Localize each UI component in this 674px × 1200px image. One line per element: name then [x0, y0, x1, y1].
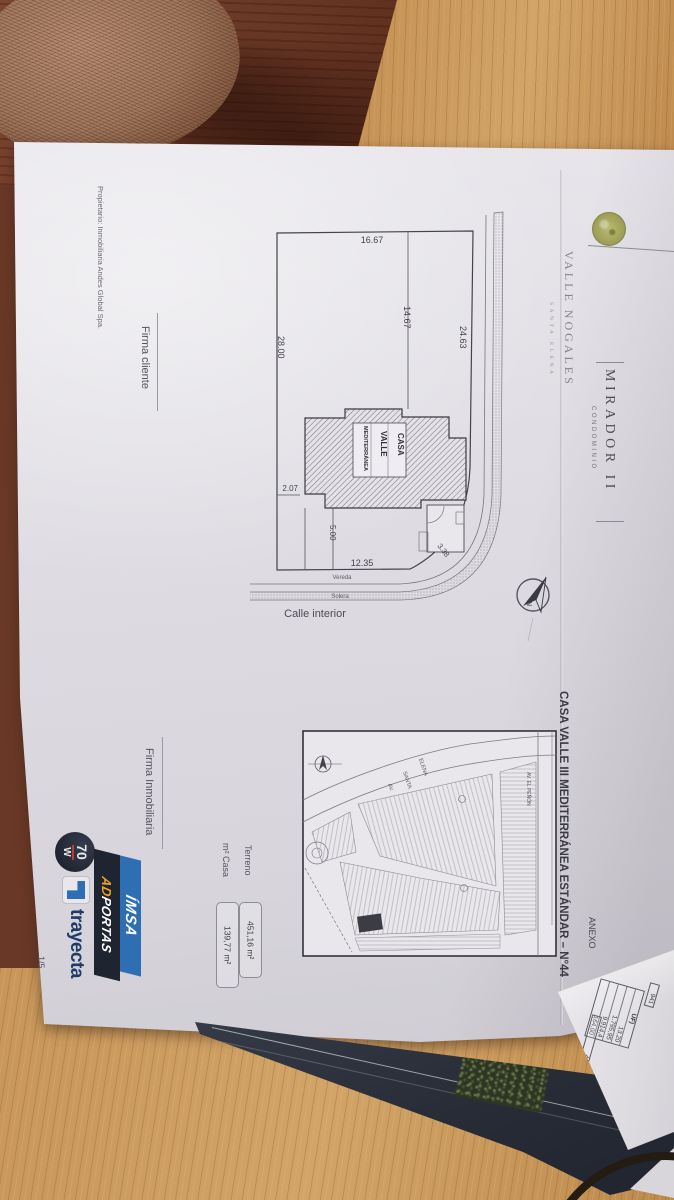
dim-inner: 14.67 — [402, 306, 412, 329]
north-letter: N — [525, 601, 532, 606]
anniversary-badge-line — [72, 845, 74, 860]
north-compass-icon: N — [517, 577, 549, 641]
house-label-line2: VALLE — [379, 431, 388, 457]
dim-top: 16.67 — [361, 235, 384, 245]
dim-drive: 5.00 — [328, 525, 337, 541]
dim-bottom: 12.35 — [351, 558, 374, 568]
dim-left: 28.00 — [276, 336, 286, 359]
imsa-adportas-logo: ÍMSA ADPORTAS — [93, 852, 141, 978]
anniversary-badge-bottom: W — [61, 847, 71, 856]
right-avenue-label: AV. EL PEÑÓN — [525, 772, 532, 806]
background-table-code: 941 — [644, 982, 660, 1008]
street-label: Calle interior — [284, 608, 346, 620]
subject-lot-marker — [357, 913, 383, 932]
house-label-line3: MEDITERRÁNEA — [362, 426, 369, 471]
project-subname: CONDOMINIO — [590, 406, 596, 471]
anniversary-badge-top: 70 — [75, 844, 89, 860]
agency-signature-line — [162, 737, 163, 849]
adportas-logo-text: ADPORTAS — [94, 849, 120, 981]
trayecta-logo-icon — [63, 877, 89, 903]
project-rule-top — [596, 362, 624, 363]
project-name: MIRADOR II — [601, 369, 617, 493]
trayecta-logo-text: trayecta — [65, 909, 87, 978]
valle-nogales-logo-icon — [592, 212, 626, 246]
project-rule-bottom — [596, 521, 624, 522]
land-area-label: Terreno — [243, 845, 253, 876]
house-label-line1: CASA — [396, 433, 405, 456]
sidewalk-label: Vereda — [332, 575, 352, 581]
client-signature-label: Firma cliente — [139, 326, 151, 389]
house-area-value: 139,77 m² — [223, 926, 233, 964]
bg-table-code-value: 941 — [645, 983, 659, 1006]
site-plan-drawing: CASA VALLE MEDITERRÁNEA 16.67 14.67 24.6… — [250, 200, 570, 650]
location-map: AV. SANTA ELENA AV. EL PEÑÓN — [296, 722, 564, 962]
land-area-box: 451,16 m² — [239, 902, 262, 978]
house-area-label: m² Casa — [221, 843, 231, 877]
agency-signature-label: Firma Inmobiliaria — [143, 748, 155, 835]
adportas-portas: PORTAS — [100, 895, 115, 955]
client-signature-line — [157, 313, 158, 411]
curb-label: Solera — [331, 594, 349, 600]
owner-label: Propietario: Inmobiliaria Andes Global S… — [96, 186, 105, 329]
trayecta-logo: trayecta — [59, 877, 93, 995]
curb-band — [250, 212, 503, 600]
dim-right: 24.63 — [458, 326, 468, 349]
house-area-box: 139,77 m² — [216, 902, 239, 988]
dim-step: 2.07 — [282, 484, 298, 493]
anniversary-badge: 70 W — [55, 832, 95, 872]
annex-label: ANEXO — [587, 917, 597, 949]
page-number: 1/5 — [36, 956, 46, 969]
land-area-value: 451,16 m² — [246, 921, 256, 959]
photo-of-site-plan-document: VALLE NOGALES SANTA ELENA MIRADOR II CON… — [0, 0, 674, 1200]
imsa-logo-text: ÍMSA — [120, 855, 141, 976]
